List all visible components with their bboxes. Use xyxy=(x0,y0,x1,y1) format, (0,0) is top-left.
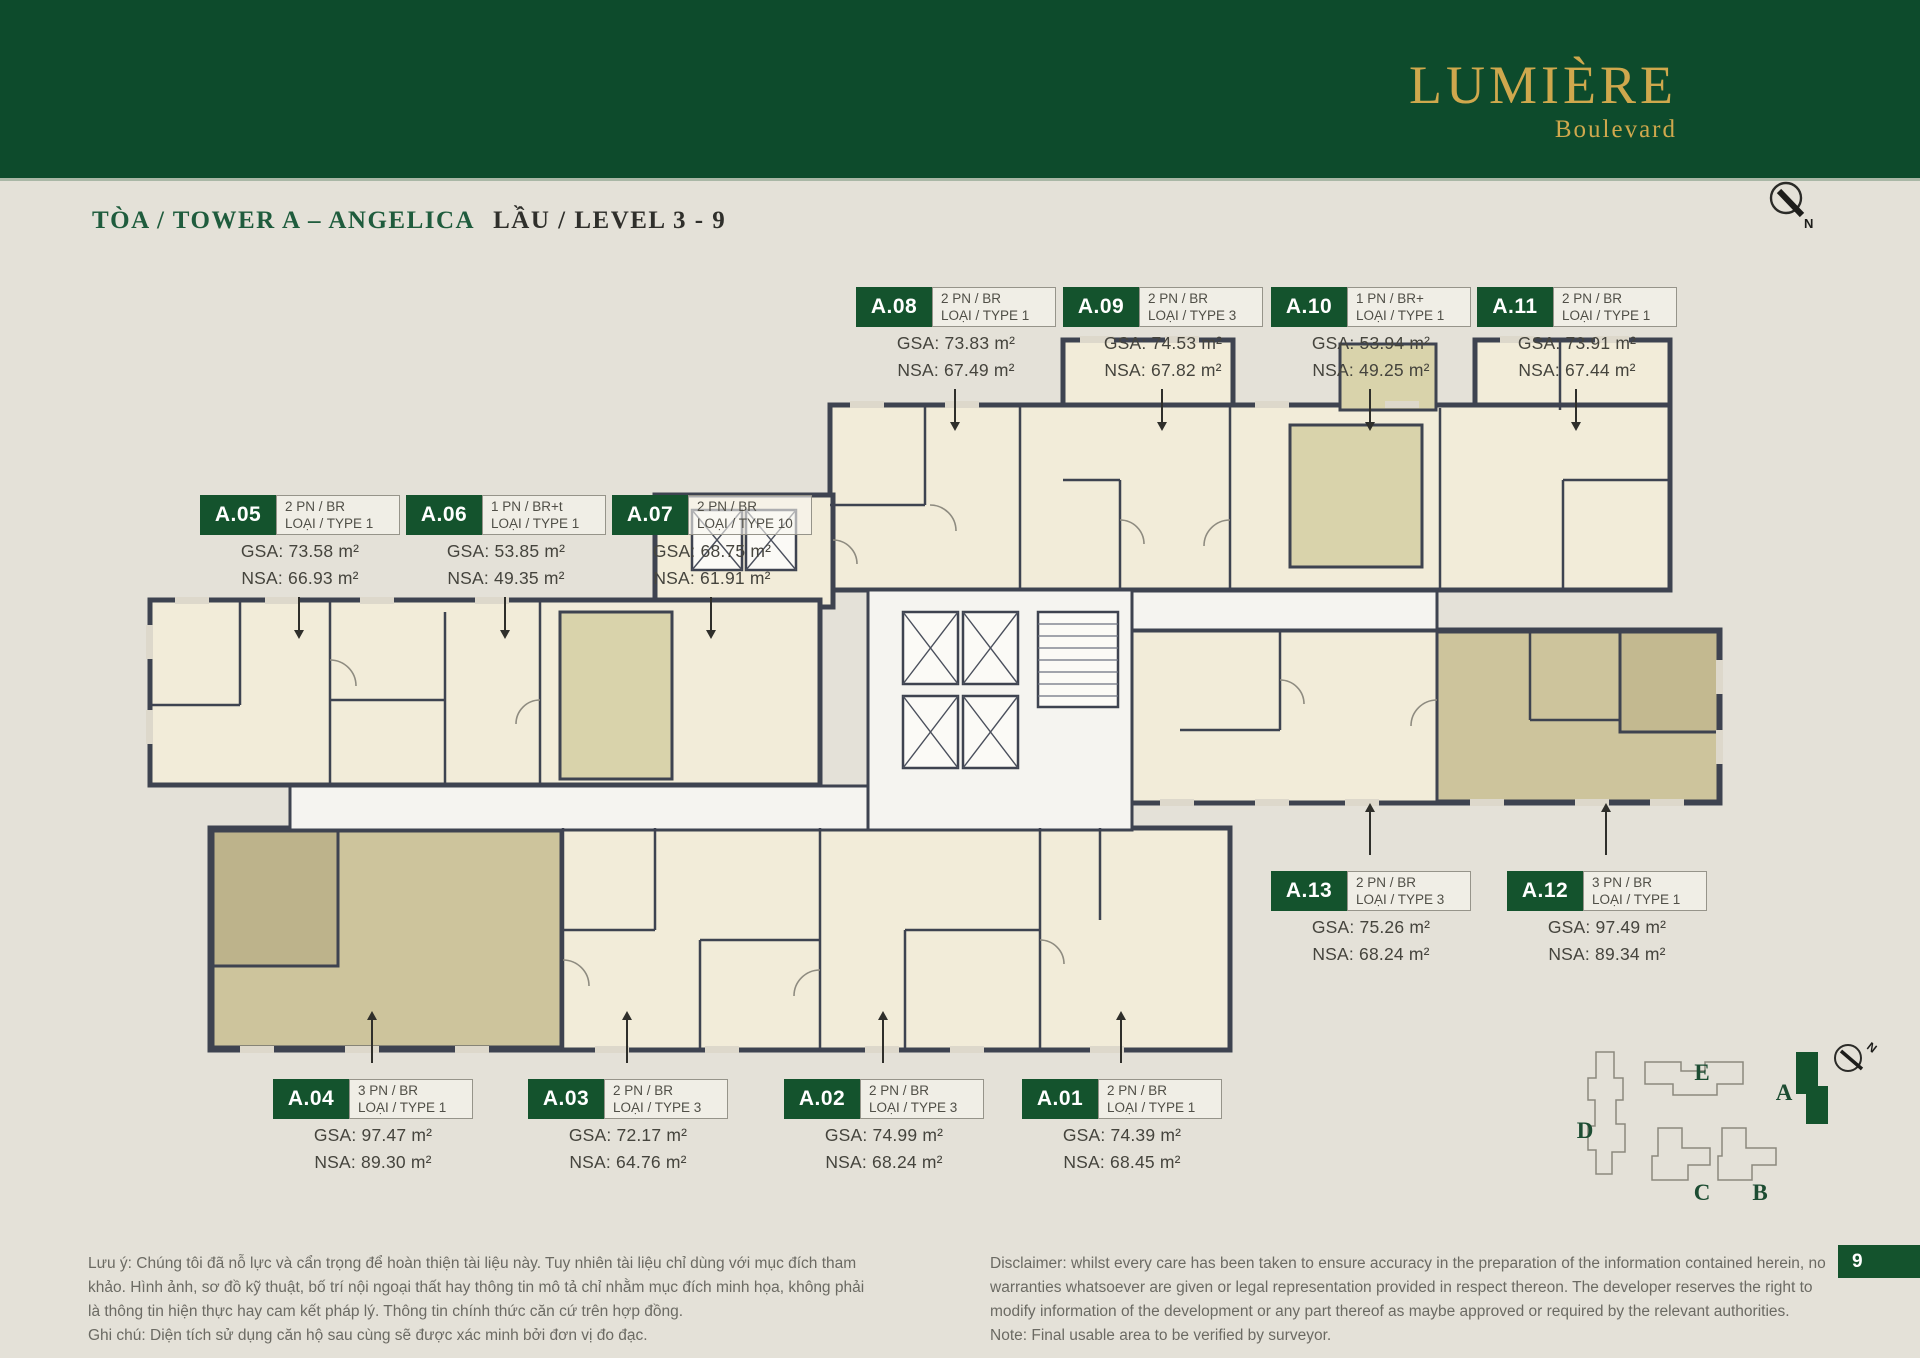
unit-type-box: 2 PN / BR LOẠI / TYPE 3 xyxy=(604,1079,728,1119)
unit-bedrooms: 3 PN / BR xyxy=(358,1082,464,1099)
unit-bedrooms: 2 PN / BR xyxy=(613,1082,719,1099)
unit-type-box: 1 PN / BR+ LOẠI / TYPE 1 xyxy=(1347,287,1471,327)
unit-id-badge: A.03 xyxy=(528,1079,604,1119)
unit-label-a01: A.01 2 PN / BR LOẠI / TYPE 1 GSA: 74.39 … xyxy=(1022,1079,1222,1173)
unit-type: LOẠI / TYPE 3 xyxy=(1148,307,1254,324)
plan-stair-treads xyxy=(1038,624,1118,696)
unit-nsa: NSA: 67.49 m² xyxy=(856,360,1056,381)
unit-nsa: NSA: 66.93 m² xyxy=(200,568,400,589)
unit-gsa: GSA: 72.17 m² xyxy=(528,1125,728,1146)
compass-north-label: N xyxy=(1804,216,1813,231)
unit-type-box: 3 PN / BR LOẠI / TYPE 1 xyxy=(349,1079,473,1119)
unit-chip: A.12 3 PN / BR LOẠI / TYPE 1 xyxy=(1507,871,1707,911)
keyplan-tower-d-outline xyxy=(1588,1052,1625,1174)
unit-pointer-arrow xyxy=(1369,811,1371,855)
unit-chip: A.01 2 PN / BR LOẠI / TYPE 1 xyxy=(1022,1079,1222,1119)
unit-id-badge: A.10 xyxy=(1271,287,1347,327)
unit-bedrooms: 2 PN / BR xyxy=(285,498,391,515)
unit-type-box: 2 PN / BR LOẠI / TYPE 1 xyxy=(1098,1079,1222,1119)
unit-bedrooms: 3 PN / BR xyxy=(1592,874,1698,891)
keyplan-tower-letter-c: C xyxy=(1694,1180,1711,1205)
unit-pointer-arrow xyxy=(626,1019,628,1063)
unit-id-badge: A.05 xyxy=(200,495,276,535)
unit-id-badge: A.04 xyxy=(273,1079,349,1119)
keyplan-tower-e-outline xyxy=(1645,1062,1743,1095)
unit-chip: A.03 2 PN / BR LOẠI / TYPE 3 xyxy=(528,1079,728,1119)
unit-label-a06: A.06 1 PN / BR+t LOẠI / TYPE 1 GSA: 53.8… xyxy=(406,495,606,589)
unit-chip: A.06 1 PN / BR+t LOẠI / TYPE 1 xyxy=(406,495,606,535)
unit-pointer-arrow xyxy=(710,597,712,631)
unit-type: LOẠI / TYPE 1 xyxy=(1562,307,1668,324)
unit-nsa: NSA: 68.24 m² xyxy=(784,1152,984,1173)
unit-nsa: NSA: 67.44 m² xyxy=(1477,360,1677,381)
unit-bedrooms: 1 PN / BR+ xyxy=(1356,290,1462,307)
unit-type: LOẠI / TYPE 1 xyxy=(1592,891,1698,908)
brochure-page: LUMIÈRE Boulevard TÒA / TOWER A – ANGELI… xyxy=(0,0,1920,1358)
header-band: LUMIÈRE Boulevard xyxy=(0,0,1920,181)
unit-chip: A.02 2 PN / BR LOẠI / TYPE 3 xyxy=(784,1079,984,1119)
unit-pointer-arrow xyxy=(1575,389,1577,423)
unit-type-box: 2 PN / BR LOẠI / TYPE 3 xyxy=(1347,871,1471,911)
unit-pointer-arrow xyxy=(298,597,300,631)
brand-logo: LUMIÈRE Boulevard xyxy=(1409,58,1677,144)
unit-chip: A.05 2 PN / BR LOẠI / TYPE 1 xyxy=(200,495,400,535)
unit-gsa: GSA: 74.39 m² xyxy=(1022,1125,1222,1146)
plan-windows xyxy=(146,336,1723,1053)
unit-type-box: 2 PN / BR LOẠI / TYPE 10 xyxy=(688,495,812,535)
unit-gsa: GSA: 73.91 m² xyxy=(1477,333,1677,354)
level-title: LẦU / LEVEL 3 - 9 xyxy=(493,207,726,234)
unit-id-badge: A.06 xyxy=(406,495,482,535)
unit-gsa: GSA: 73.83 m² xyxy=(856,333,1056,354)
unit-type-box: 2 PN / BR LOẠI / TYPE 1 xyxy=(1553,287,1677,327)
unit-gsa: GSA: 73.58 m² xyxy=(200,541,400,562)
footer-vi-disclaimer: Lưu ý: Chúng tôi đã nỗ lực và cẩn trọng … xyxy=(88,1252,876,1324)
unit-type-box: 3 PN / BR LOẠI / TYPE 1 xyxy=(1583,871,1707,911)
unit-chip: A.13 2 PN / BR LOẠI / TYPE 3 xyxy=(1271,871,1471,911)
unit-type: LOẠI / TYPE 3 xyxy=(869,1099,975,1116)
keyplan-compass-north-label: N xyxy=(1864,1039,1879,1055)
unit-label-a03: A.03 2 PN / BR LOẠI / TYPE 3 GSA: 72.17 … xyxy=(528,1079,728,1173)
unit-bedrooms: 1 PN / BR+t xyxy=(491,498,597,515)
unit-nsa: NSA: 49.35 m² xyxy=(406,568,606,589)
keyplan-tower-letter-a: A xyxy=(1776,1080,1793,1105)
unit-id-badge: A.13 xyxy=(1271,871,1347,911)
unit-gsa: GSA: 97.49 m² xyxy=(1507,917,1707,938)
unit-nsa: NSA: 49.25 m² xyxy=(1271,360,1471,381)
unit-id-badge: A.07 xyxy=(612,495,688,535)
unit-chip: A.10 1 PN / BR+ LOẠI / TYPE 1 xyxy=(1271,287,1471,327)
unit-bedrooms: 2 PN / BR xyxy=(869,1082,975,1099)
page-title: TÒA / TOWER A – ANGELICALẦU / LEVEL 3 - … xyxy=(92,207,726,235)
unit-label-a12: A.12 3 PN / BR LOẠI / TYPE 1 GSA: 97.49 … xyxy=(1507,871,1707,965)
unit-pointer-arrow xyxy=(1161,389,1163,423)
unit-type: LOẠI / TYPE 1 xyxy=(941,307,1047,324)
unit-nsa: NSA: 67.82 m² xyxy=(1063,360,1263,381)
keyplan-tower-letter-b: B xyxy=(1752,1180,1767,1205)
unit-label-a08: A.08 2 PN / BR LOẠI / TYPE 1 GSA: 73.83 … xyxy=(856,287,1056,381)
unit-id-badge: A.01 xyxy=(1022,1079,1098,1119)
unit-pointer-arrow xyxy=(504,597,506,631)
unit-chip: A.07 2 PN / BR LOẠI / TYPE 10 xyxy=(612,495,812,535)
footer-english: Disclaimer: whilst every care has been t… xyxy=(990,1252,1838,1348)
unit-type-box: 2 PN / BR LOẠI / TYPE 1 xyxy=(276,495,400,535)
unit-gsa: GSA: 74.99 m² xyxy=(784,1125,984,1146)
unit-chip: A.09 2 PN / BR LOẠI / TYPE 3 xyxy=(1063,287,1263,327)
unit-pointer-arrow xyxy=(1120,1019,1122,1063)
unit-gsa: GSA: 74.53 m² xyxy=(1063,333,1263,354)
plan-corridors xyxy=(290,590,1437,830)
unit-type: LOẠI / TYPE 3 xyxy=(613,1099,719,1116)
keyplan-compass-icon: N xyxy=(1835,1039,1880,1071)
unit-label-a13: A.13 2 PN / BR LOẠI / TYPE 3 GSA: 75.26 … xyxy=(1271,871,1471,965)
unit-pointer-arrow xyxy=(1605,811,1607,855)
unit-chip: A.04 3 PN / BR LOẠI / TYPE 1 xyxy=(273,1079,473,1119)
unit-bedrooms: 2 PN / BR xyxy=(1107,1082,1213,1099)
brand-logo-title: LUMIÈRE xyxy=(1409,58,1677,112)
unit-id-badge: A.09 xyxy=(1063,287,1139,327)
unit-type: LOẠI / TYPE 1 xyxy=(285,515,391,532)
unit-nsa: NSA: 68.24 m² xyxy=(1271,944,1471,965)
unit-type-box: 2 PN / BR LOẠI / TYPE 1 xyxy=(932,287,1056,327)
unit-type: LOẠI / TYPE 1 xyxy=(491,515,597,532)
keyplan-tower-letter-e: E xyxy=(1694,1060,1709,1085)
unit-id-badge: A.11 xyxy=(1477,287,1553,327)
keyplan-tower-a-shape xyxy=(1796,1052,1828,1124)
unit-type: LOẠI / TYPE 10 xyxy=(697,515,803,532)
unit-type: LOẠI / TYPE 3 xyxy=(1356,891,1462,908)
unit-gsa: GSA: 53.85 m² xyxy=(406,541,606,562)
compass-icon: N xyxy=(1760,172,1824,238)
unit-label-a07: A.07 2 PN / BR LOẠI / TYPE 10 GSA: 68.75… xyxy=(612,495,812,589)
unit-nsa: NSA: 89.30 m² xyxy=(273,1152,473,1173)
footer-vietnamese: Lưu ý: Chúng tôi đã nỗ lực và cẩn trọng … xyxy=(88,1252,876,1348)
footer-vi-note: Ghi chú: Diện tích sử dụng căn hộ sau cù… xyxy=(88,1324,876,1348)
unit-gsa: GSA: 97.47 m² xyxy=(273,1125,473,1146)
footer-en-note: Note: Final usable area to be verified b… xyxy=(990,1324,1838,1348)
unit-nsa: NSA: 68.45 m² xyxy=(1022,1152,1222,1173)
unit-type: LOẠI / TYPE 1 xyxy=(1107,1099,1213,1116)
unit-type-box: 2 PN / BR LOẠI / TYPE 3 xyxy=(860,1079,984,1119)
unit-label-a02: A.02 2 PN / BR LOẠI / TYPE 3 GSA: 74.99 … xyxy=(784,1079,984,1173)
unit-bedrooms: 2 PN / BR xyxy=(697,498,803,515)
unit-bedrooms: 2 PN / BR xyxy=(1562,290,1668,307)
unit-chip: A.11 2 PN / BR LOẠI / TYPE 1 xyxy=(1477,287,1677,327)
unit-label-a05: A.05 2 PN / BR LOẠI / TYPE 1 GSA: 73.58 … xyxy=(200,495,400,589)
unit-nsa: NSA: 89.34 m² xyxy=(1507,944,1707,965)
unit-label-a09: A.09 2 PN / BR LOẠI / TYPE 3 GSA: 74.53 … xyxy=(1063,287,1263,381)
page-number-badge: 9 xyxy=(1838,1245,1920,1278)
unit-id-badge: A.08 xyxy=(856,287,932,327)
footer-en-disclaimer: Disclaimer: whilst every care has been t… xyxy=(990,1252,1838,1324)
plan-olive-rooms xyxy=(213,344,1718,1047)
unit-bedrooms: 2 PN / BR xyxy=(941,290,1047,307)
unit-gsa: GSA: 75.26 m² xyxy=(1271,917,1471,938)
key-plan: E A D C B N xyxy=(1577,1039,1880,1205)
unit-gsa: GSA: 68.75 m² xyxy=(612,541,812,562)
unit-type: LOẠI / TYPE 1 xyxy=(358,1099,464,1116)
brand-logo-subtitle: Boulevard xyxy=(1409,116,1677,144)
unit-id-badge: A.12 xyxy=(1507,871,1583,911)
keyplan-tower-c-outline xyxy=(1652,1128,1710,1180)
unit-gsa: GSA: 53.94 m² xyxy=(1271,333,1471,354)
unit-chip: A.08 2 PN / BR LOẠI / TYPE 1 xyxy=(856,287,1056,327)
unit-nsa: NSA: 64.76 m² xyxy=(528,1152,728,1173)
unit-pointer-arrow xyxy=(882,1019,884,1063)
keyplan-tower-letter-d: D xyxy=(1577,1118,1594,1143)
unit-pointer-arrow xyxy=(371,1019,373,1063)
unit-type: LOẠI / TYPE 1 xyxy=(1356,307,1462,324)
unit-pointer-arrow xyxy=(954,389,956,423)
unit-bedrooms: 2 PN / BR xyxy=(1148,290,1254,307)
tower-title: TÒA / TOWER A – ANGELICA xyxy=(92,207,475,234)
plan-wings xyxy=(150,340,1720,1050)
unit-label-a11: A.11 2 PN / BR LOẠI / TYPE 1 GSA: 73.91 … xyxy=(1477,287,1677,381)
unit-label-a10: A.10 1 PN / BR+ LOẠI / TYPE 1 GSA: 53.94… xyxy=(1271,287,1471,381)
unit-pointer-arrow xyxy=(1369,389,1371,423)
keyplan-tower-b-outline xyxy=(1718,1128,1776,1180)
unit-bedrooms: 2 PN / BR xyxy=(1356,874,1462,891)
unit-nsa: NSA: 61.91 m² xyxy=(612,568,812,589)
unit-type-box: 2 PN / BR LOẠI / TYPE 3 xyxy=(1139,287,1263,327)
unit-type-box: 1 PN / BR+t LOẠI / TYPE 1 xyxy=(482,495,606,535)
unit-label-a04: A.04 3 PN / BR LOẠI / TYPE 1 GSA: 97.47 … xyxy=(273,1079,473,1173)
unit-id-badge: A.02 xyxy=(784,1079,860,1119)
